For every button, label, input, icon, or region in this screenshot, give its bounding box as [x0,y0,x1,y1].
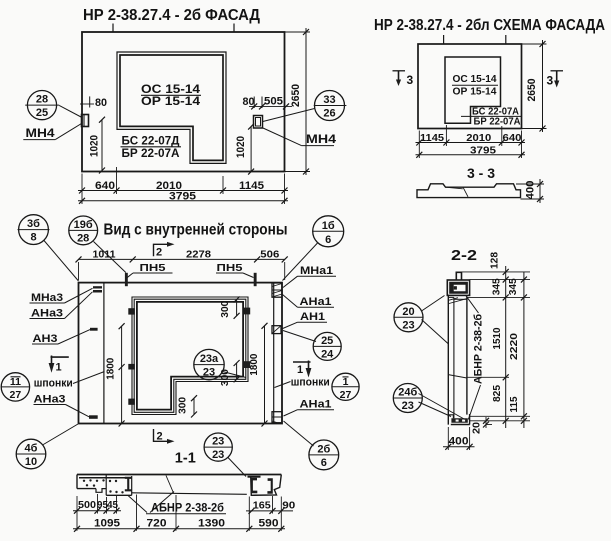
svg-text:ПН5: ПН5 [140,263,167,274]
svg-text:24б: 24б [398,387,417,399]
svg-text:2220: 2220 [508,333,520,360]
svg-text:1: 1 [343,376,349,388]
svg-text:АНа1: АНа1 [300,399,332,411]
svg-text:825: 825 [491,385,503,402]
svg-text:345: 345 [507,278,519,295]
svg-text:300: 300 [219,301,231,318]
svg-text:28: 28 [36,94,48,106]
svg-text:400: 400 [525,181,537,200]
svg-text:80: 80 [95,97,107,109]
svg-text:115: 115 [508,396,520,412]
svg-text:19б: 19б [74,219,93,231]
svg-text:МНа3: МНа3 [31,292,63,304]
svg-text:23а: 23а [200,353,219,365]
svg-text:МН4: МН4 [306,134,337,146]
svg-text:23: 23 [402,400,414,412]
svg-text:шпонки: шпонки [34,378,73,390]
svg-text:26: 26 [323,108,335,120]
svg-text:45: 45 [107,499,118,511]
svg-text:300: 300 [176,397,188,414]
svg-text:640: 640 [503,132,522,144]
svg-text:24: 24 [321,348,334,360]
svg-text:3: 3 [407,73,414,87]
svg-text:3795: 3795 [169,190,196,202]
svg-text:Вид с внутренней стороны: Вид с внутренней стороны [104,222,288,239]
svg-text:НР 2-38.27.4 - 2бл СХЕМА ФАСАД: НР 2-38.27.4 - 2бл СХЕМА ФАСАДА [374,17,605,34]
svg-text:1: 1 [56,362,62,374]
svg-text:2010: 2010 [466,132,491,144]
svg-text:АНа3: АНа3 [31,308,63,320]
svg-text:3795: 3795 [470,144,496,156]
svg-text:400: 400 [449,435,469,447]
svg-text:АН1: АН1 [300,311,325,323]
svg-text:БС 22-07Д: БС 22-07Д [122,136,180,148]
svg-text:МНа1: МНа1 [300,265,333,277]
svg-text:МН4: МН4 [26,128,56,140]
svg-text:3 - 3: 3 - 3 [467,166,496,181]
svg-text:ПН5: ПН5 [217,263,244,274]
svg-text:2б: 2б [317,443,330,455]
svg-text:11: 11 [10,376,21,388]
svg-text:6: 6 [325,234,331,246]
svg-text:590: 590 [259,518,279,530]
svg-text:АБНР 2-38-2б: АБНР 2-38-2б [151,503,224,515]
svg-text:25: 25 [36,107,48,119]
svg-text:640: 640 [95,180,115,192]
svg-text:25: 25 [321,335,333,347]
svg-text:8: 8 [30,232,36,244]
svg-text:165: 165 [253,499,271,511]
svg-text:3б: 3б [27,218,40,230]
svg-text:3: 3 [547,74,554,88]
svg-text:300: 300 [219,369,231,386]
svg-text:20: 20 [471,422,483,434]
svg-text:НР 2-38.27.4 - 2б ФАСАД: НР 2-38.27.4 - 2б ФАСАД [83,7,261,24]
svg-text:20: 20 [402,306,414,318]
svg-text:1800: 1800 [248,353,260,375]
svg-text:1020: 1020 [235,136,247,158]
svg-text:ОР 15-14: ОР 15-14 [453,86,497,98]
svg-text:1145: 1145 [420,132,444,144]
svg-text:23: 23 [203,367,215,379]
svg-text:28: 28 [77,232,89,244]
svg-text:1145: 1145 [239,180,264,192]
svg-text:2: 2 [156,247,162,259]
svg-text:АНа3: АНа3 [34,394,66,406]
svg-text:23: 23 [402,319,414,331]
svg-text:23: 23 [212,449,224,461]
svg-text:4б: 4б [25,443,38,455]
svg-text:ОР 15-14: ОР 15-14 [141,96,201,108]
svg-text:10: 10 [25,456,37,468]
svg-text:27: 27 [340,389,352,401]
svg-text:1800: 1800 [104,358,116,380]
svg-text:1510: 1510 [491,327,503,349]
svg-text:128: 128 [489,252,501,269]
svg-text:720: 720 [147,518,167,530]
svg-text:6: 6 [321,457,327,469]
svg-text:33: 33 [323,94,335,106]
svg-text:90: 90 [282,500,295,512]
svg-text:1020: 1020 [89,135,101,157]
svg-text:23: 23 [212,436,224,448]
svg-text:1095: 1095 [94,518,120,530]
svg-text:1-1: 1-1 [175,450,196,467]
svg-text:345: 345 [491,278,503,295]
svg-text:2-2: 2-2 [451,247,477,264]
svg-text:1: 1 [297,364,303,376]
svg-text:27: 27 [10,389,22,401]
svg-text:505: 505 [264,96,283,108]
svg-text:АН3: АН3 [33,333,58,345]
svg-text:2650: 2650 [526,79,538,102]
svg-text:АБНР 2-38-2б: АБНР 2-38-2б [473,314,485,384]
svg-text:1б: 1б [322,220,335,232]
svg-text:80: 80 [243,96,255,108]
svg-text:АНа1: АНа1 [300,296,332,308]
svg-text:506: 506 [260,249,279,261]
svg-text:ОС 15-14: ОС 15-14 [141,84,201,96]
svg-text:2650: 2650 [290,84,302,107]
svg-text:шпонки: шпонки [291,376,330,388]
svg-text:1390: 1390 [198,518,225,530]
svg-text:2278: 2278 [186,249,211,261]
svg-text:БР 22-07А: БР 22-07А [122,148,180,160]
svg-text:2: 2 [157,431,163,443]
svg-text:БР 22-07А: БР 22-07А [474,117,521,128]
svg-text:ОС 15-14: ОС 15-14 [453,73,497,85]
svg-text:500: 500 [78,499,96,511]
